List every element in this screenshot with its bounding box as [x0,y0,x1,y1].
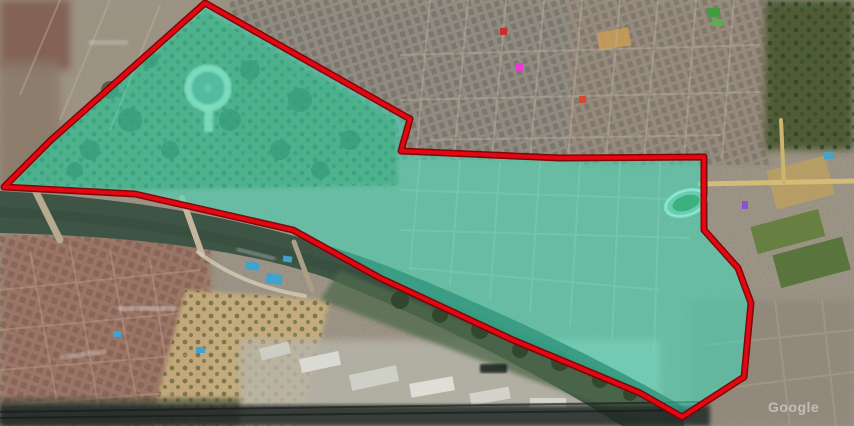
satellite-map-canvas[interactable]: Google [0,0,854,426]
map-marker-red-north [500,28,507,35]
map-marker-red-east [579,96,586,103]
google-watermark: Google [768,399,819,415]
place-label-smudge [480,364,507,373]
map-marker-magenta [516,63,523,71]
map-marker-purple [742,201,748,209]
satellite-map-view[interactable]: Google [0,0,854,426]
